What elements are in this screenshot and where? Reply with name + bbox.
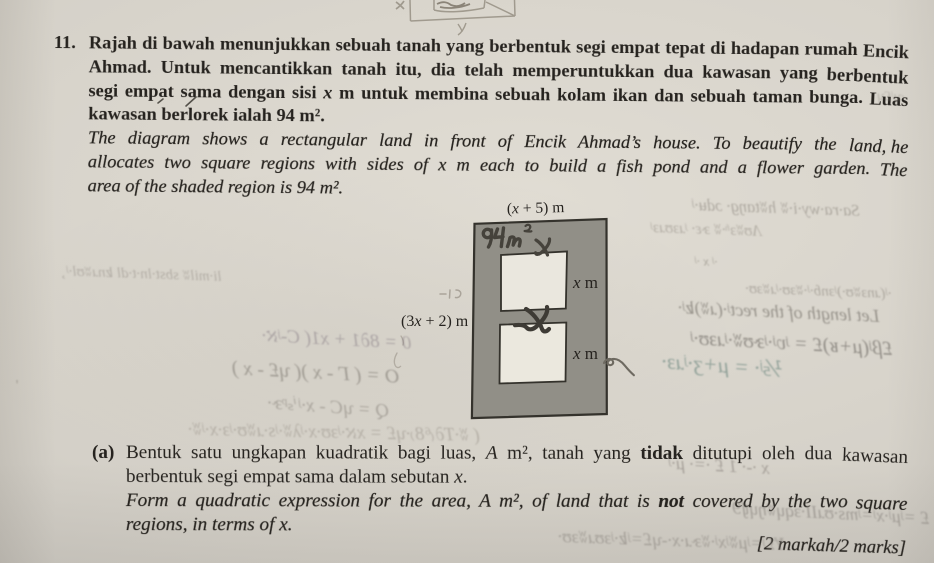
svg-text:x m: x m [572, 273, 598, 292]
svg-text:x m: x m [572, 344, 598, 363]
svg-text:(3x + 2) m: (3x + 2) m [401, 313, 469, 330]
svg-text:(x + 5) m: (x + 5) m [507, 199, 565, 217]
